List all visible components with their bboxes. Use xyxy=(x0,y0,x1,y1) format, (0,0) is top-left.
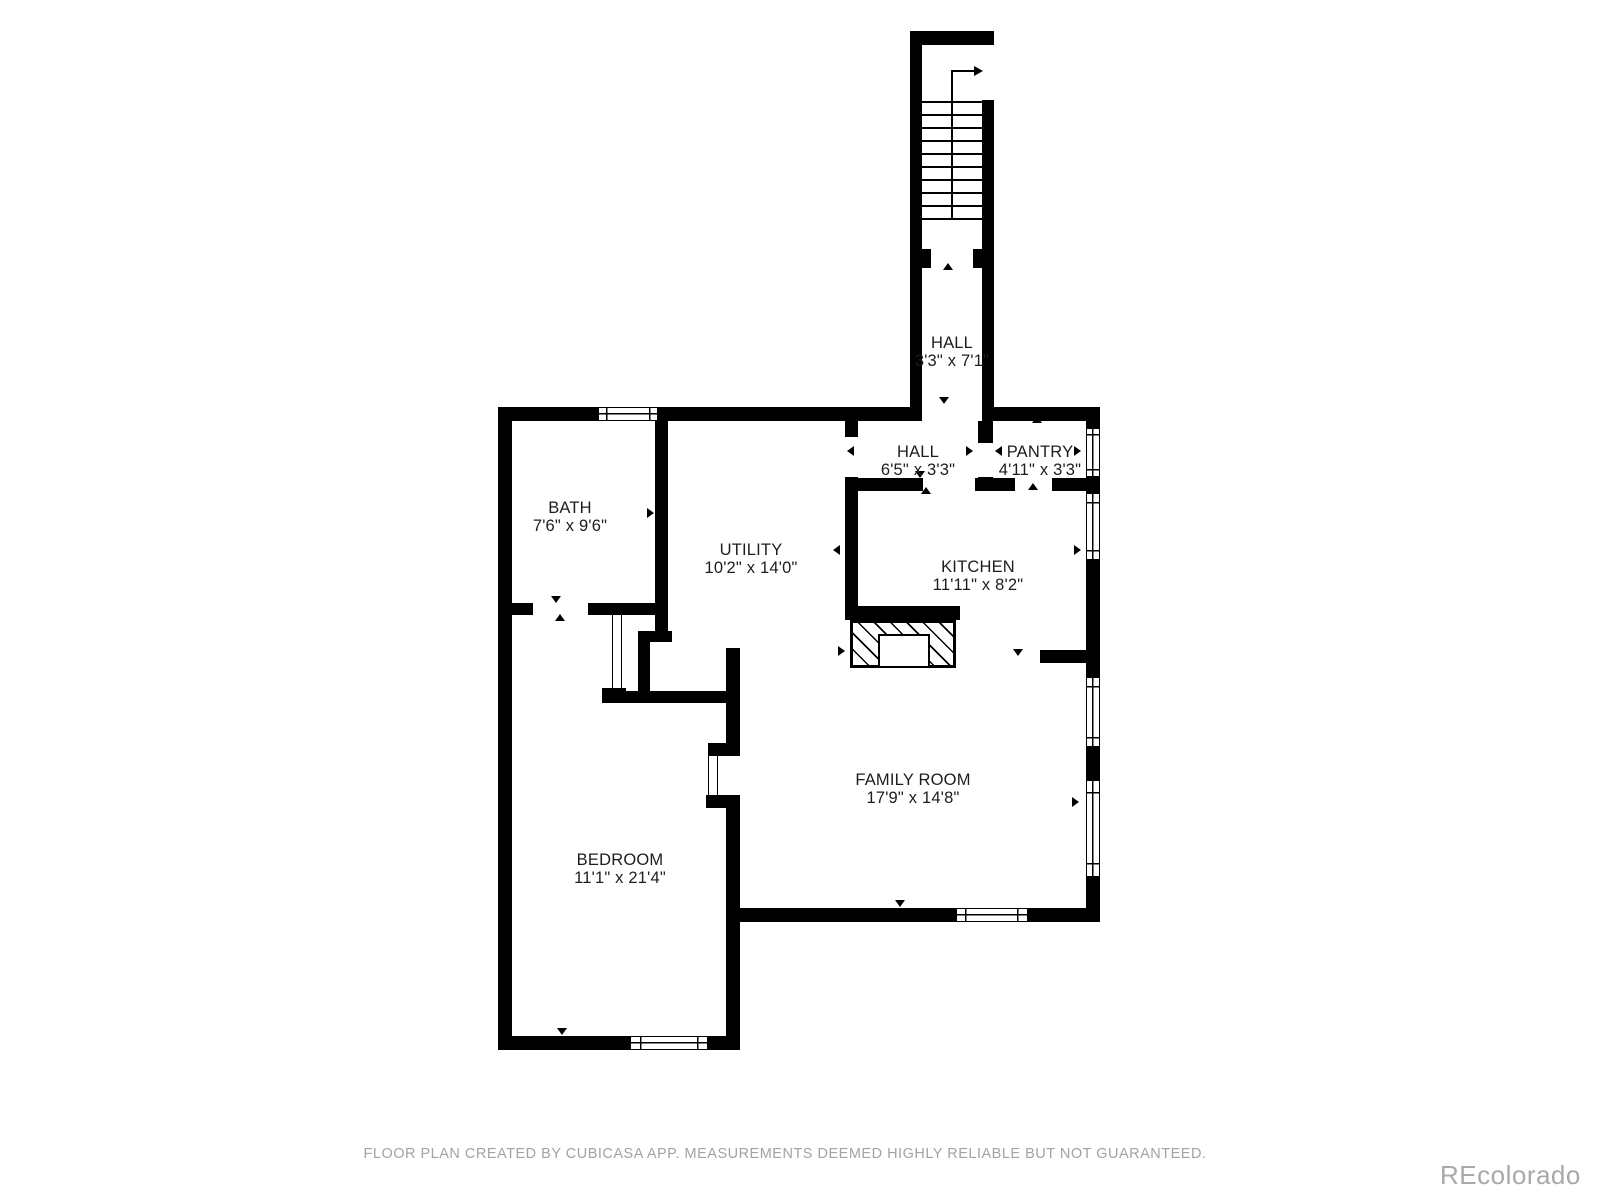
room-name: HALL xyxy=(881,443,955,461)
door-swing-marker xyxy=(501,512,508,522)
wall-segment xyxy=(1086,560,1100,677)
door-leaf xyxy=(708,756,718,795)
door-swing-marker xyxy=(551,414,561,421)
wall-segment xyxy=(1052,478,1100,491)
stair-direction-line xyxy=(952,70,974,72)
door-swing-marker xyxy=(833,545,840,555)
wall-segment xyxy=(588,603,657,615)
stair-rail xyxy=(951,70,953,218)
floorplan-canvas: HALL 3'3" x 7'1" HALL 6'5" x 3'3" PANTRY… xyxy=(0,0,1600,1200)
room-name: FAMILY ROOM xyxy=(855,771,970,789)
wall-segment xyxy=(1086,407,1100,428)
room-name: PANTRY xyxy=(999,443,1082,461)
disclaimer-text: FLOOR PLAN CREATED BY CUBICASA APP. MEAS… xyxy=(0,1146,1570,1162)
window xyxy=(956,908,1028,922)
door-swing-marker xyxy=(1032,416,1042,423)
door-swing-marker xyxy=(692,691,702,698)
wall-segment xyxy=(982,100,994,421)
wall-segment xyxy=(1040,650,1086,663)
wall-segment xyxy=(845,421,858,437)
wall-segment xyxy=(726,795,740,1050)
wall-segment xyxy=(845,477,858,615)
stair-tread xyxy=(922,218,982,220)
door-swing-marker xyxy=(1028,483,1038,490)
window xyxy=(1086,780,1100,877)
room-name: BATH xyxy=(533,499,607,517)
door-swing-marker xyxy=(1074,545,1081,555)
room-label-hall-stairs: HALL 3'3" x 7'1" xyxy=(915,334,989,370)
door-swing-marker xyxy=(838,646,845,656)
room-label-bedroom: BEDROOM 11'1" x 21'4" xyxy=(574,851,666,887)
room-name: BEDROOM xyxy=(574,851,666,869)
wall-segment xyxy=(498,603,533,615)
room-label-utility: UTILITY 10'2" x 14'0" xyxy=(704,541,797,577)
wall-segment xyxy=(498,407,512,1050)
door-swing-marker xyxy=(966,446,973,456)
stair-direction-arrow-icon xyxy=(974,66,983,76)
room-dimensions: 11'1" x 21'4" xyxy=(574,869,666,887)
wall-segment xyxy=(973,249,982,268)
window xyxy=(1086,677,1100,747)
wall-segment xyxy=(845,478,923,491)
door-swing-marker xyxy=(647,508,654,518)
door-swing-marker xyxy=(895,900,905,907)
wall-segment xyxy=(708,743,740,756)
door-swing-marker xyxy=(939,397,949,404)
room-name: KITCHEN xyxy=(933,558,1024,576)
door-swing-marker xyxy=(643,642,650,652)
fireplace-firebox xyxy=(878,634,930,668)
room-dimensions: 3'3" x 7'1" xyxy=(915,352,989,370)
room-label-hall: HALL 6'5" x 3'3" xyxy=(881,443,955,479)
wall-segment xyxy=(602,688,626,703)
door-leaf xyxy=(612,615,622,688)
room-label-kitchen: KITCHEN 11'11" x 8'2" xyxy=(933,558,1024,594)
door-swing-marker xyxy=(551,596,561,603)
room-label-family-room: FAMILY ROOM 17'9" x 14'8" xyxy=(855,771,970,807)
room-label-bath: BATH 7'6" x 9'6" xyxy=(533,499,607,535)
wall-segment xyxy=(910,31,994,45)
wall-segment xyxy=(498,1036,630,1050)
window xyxy=(1086,428,1100,477)
door-swing-marker xyxy=(1072,797,1079,807)
room-dimensions: 17'9" x 14'8" xyxy=(855,789,970,807)
door-swing-marker xyxy=(555,614,565,621)
door-swing-marker xyxy=(900,608,910,615)
wall-segment xyxy=(1086,877,1100,922)
room-dimensions: 11'11" x 8'2" xyxy=(933,576,1024,594)
room-dimensions: 6'5" x 3'3" xyxy=(881,461,955,479)
room-dimensions: 4'11" x 3'3" xyxy=(999,461,1082,479)
room-name: UTILITY xyxy=(704,541,797,559)
door-swing-marker xyxy=(694,414,704,421)
window xyxy=(598,407,658,421)
room-name: HALL xyxy=(915,334,989,352)
door-swing-marker xyxy=(1013,649,1023,656)
room-dimensions: 10'2" x 14'0" xyxy=(704,559,797,577)
wall-segment xyxy=(975,478,1015,491)
recolorado-watermark: REcolorado xyxy=(1440,1160,1581,1191)
room-dimensions: 7'6" x 9'6" xyxy=(533,517,607,535)
room-label-pantry: PANTRY 4'11" x 3'3" xyxy=(999,443,1082,479)
wall-segment xyxy=(922,249,931,268)
wall-segment xyxy=(978,421,993,443)
door-swing-marker xyxy=(557,1028,567,1035)
wall-segment xyxy=(726,648,740,743)
door-swing-marker xyxy=(943,263,953,270)
door-swing-marker xyxy=(502,692,509,702)
door-swing-marker xyxy=(847,446,854,456)
wall-segment xyxy=(610,691,730,703)
wall-segment xyxy=(1086,747,1100,780)
wall-segment xyxy=(655,407,668,640)
wall-segment xyxy=(498,407,598,421)
window xyxy=(1086,493,1100,560)
window xyxy=(630,1036,708,1050)
door-swing-marker xyxy=(921,487,931,494)
wall-segment xyxy=(726,908,956,922)
